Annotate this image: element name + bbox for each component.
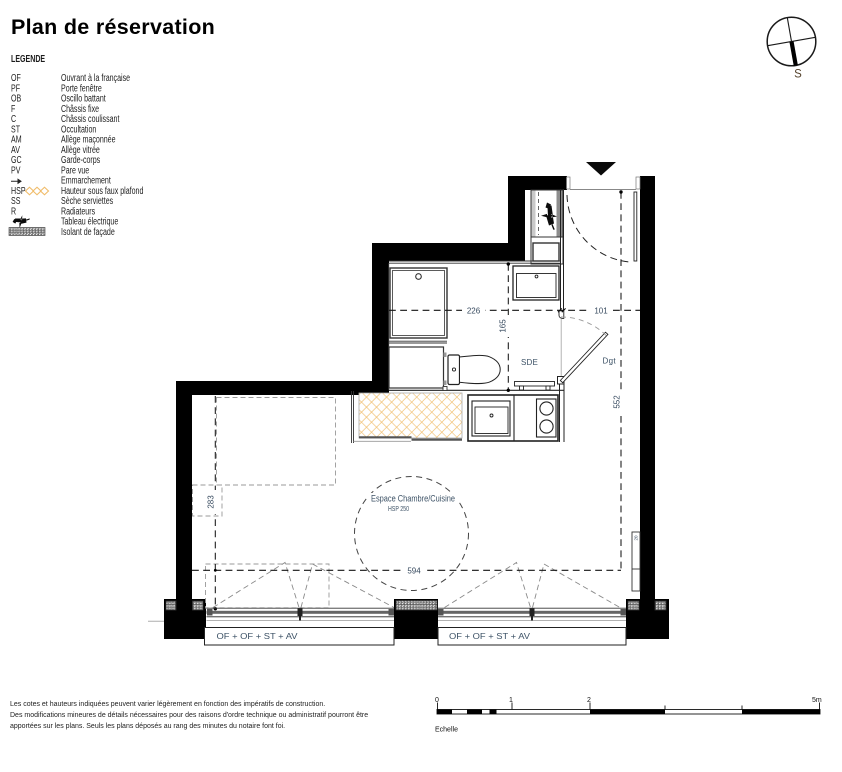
svg-text:Espace Chambre/Cuisine: Espace Chambre/Cuisine: [371, 494, 455, 504]
svg-text:Echelle: Echelle: [435, 727, 458, 734]
svg-text:Des modifications mineures de: Des modifications mineures de détails né…: [10, 712, 368, 719]
svg-text:Les cotes et hauteurs indiquée: Les cotes et hauteurs indiquées peuvent …: [10, 701, 325, 708]
svg-text:594: 594: [407, 567, 421, 576]
svg-text:PV: PV: [11, 164, 20, 176]
svg-text:OF + OF + ST + AV: OF + OF + ST + AV: [217, 632, 299, 641]
svg-text:OF + OF + ST + AV: OF + OF + ST + AV: [449, 632, 531, 641]
svg-text:101: 101: [594, 307, 608, 316]
svg-text:0: 0: [435, 697, 439, 704]
svg-text:552: 552: [613, 395, 622, 409]
svg-text:283: 283: [207, 495, 216, 509]
svg-text:S: S: [794, 69, 802, 81]
svg-text:R: R: [11, 205, 16, 217]
svg-text:HSP 250: HSP 250: [388, 506, 409, 513]
svg-text:Dgt: Dgt: [603, 357, 617, 366]
svg-text:apportées sur les plans. Seuls: apportées sur les plans. Seuls les plans…: [10, 723, 285, 730]
svg-text:Plan de réservation: Plan de réservation: [11, 15, 215, 39]
svg-text:SDE: SDE: [521, 358, 538, 367]
svg-text:Isolant de façade: Isolant de façade: [61, 225, 115, 237]
svg-text:5m: 5m: [812, 697, 822, 704]
svg-text:20: 20: [634, 535, 639, 541]
svg-text:226: 226: [467, 307, 481, 316]
svg-text:165: 165: [499, 319, 508, 333]
svg-text:LEGENDE: LEGENDE: [11, 53, 45, 65]
